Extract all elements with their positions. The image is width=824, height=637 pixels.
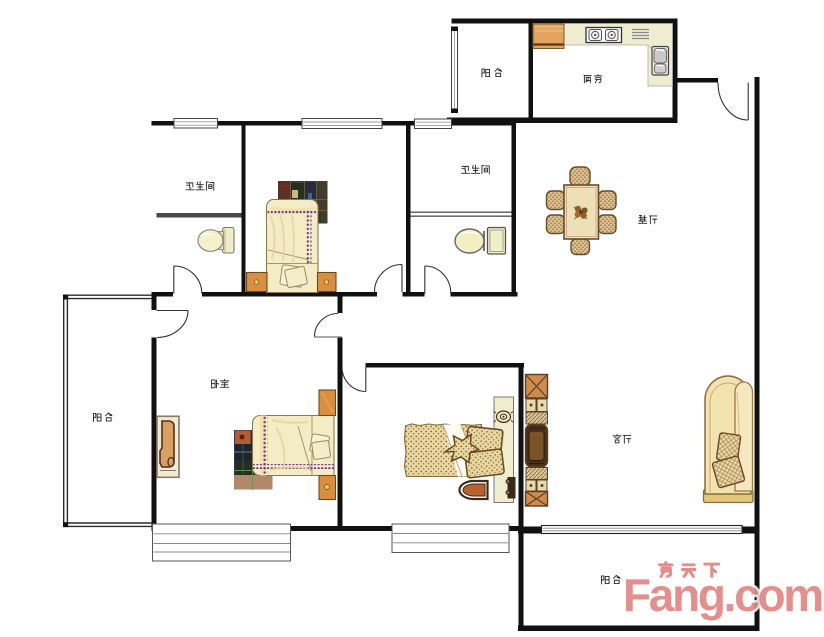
svg-text:Fang.com: Fang.com (623, 569, 822, 621)
